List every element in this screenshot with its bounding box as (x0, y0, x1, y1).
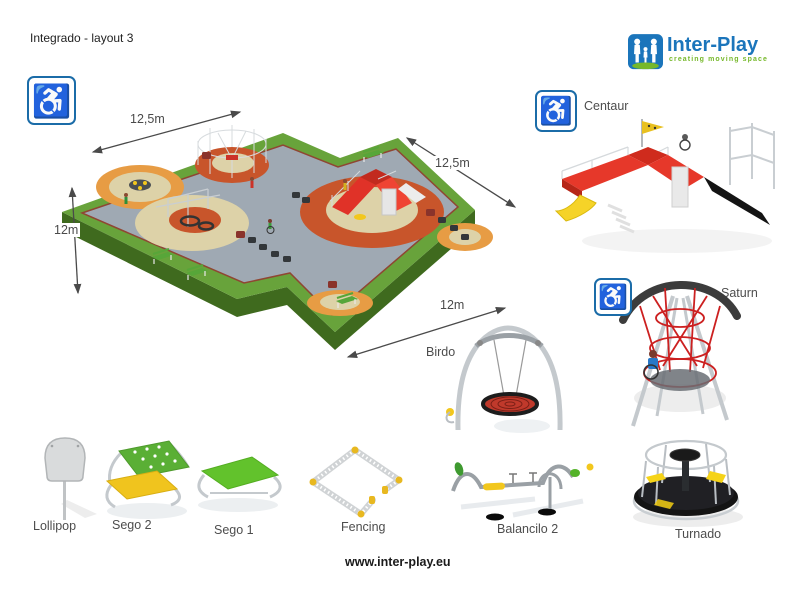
product-image-centaur (552, 115, 797, 263)
product-image-birdo (442, 312, 577, 437)
dimension-right: 12,5m (433, 156, 472, 170)
product-label-sego1: Sego 1 (214, 523, 254, 537)
stairs (608, 205, 634, 232)
product-image-turnado (618, 419, 756, 531)
brand-name: Inter-Play (667, 34, 768, 56)
product-image-sego2 (95, 437, 203, 522)
dimension-left: 12m (52, 223, 80, 237)
dimension-bottom: 12m (438, 298, 466, 312)
wheelchair-badge-saturn: ♿ (594, 278, 632, 316)
page-title: Integrado - layout 3 (30, 31, 133, 45)
wheelchair-user-figure (680, 134, 690, 150)
product-image-balancilo2 (443, 441, 598, 529)
product-image-fencing (303, 436, 411, 528)
product-image-lollipop (25, 430, 105, 525)
website-url: www.inter-play.eu (345, 555, 451, 569)
carousel-equipment (129, 180, 151, 191)
monkey-bars (730, 123, 774, 189)
brand-tagline: creating moving space (669, 56, 768, 63)
product-image-sego1 (188, 441, 290, 519)
catalog-page: Integrado - layout 3 ♿ ♿ ♿ Inter-Play cr… (0, 0, 800, 604)
product-label-centaur: Centaur (584, 99, 628, 113)
logo-mark-icon (628, 34, 663, 71)
wheelchair-icon: ♿ (598, 283, 628, 312)
brand-logo: Inter-Play creating moving space (628, 34, 768, 71)
dimension-top: 12,5m (128, 112, 167, 126)
